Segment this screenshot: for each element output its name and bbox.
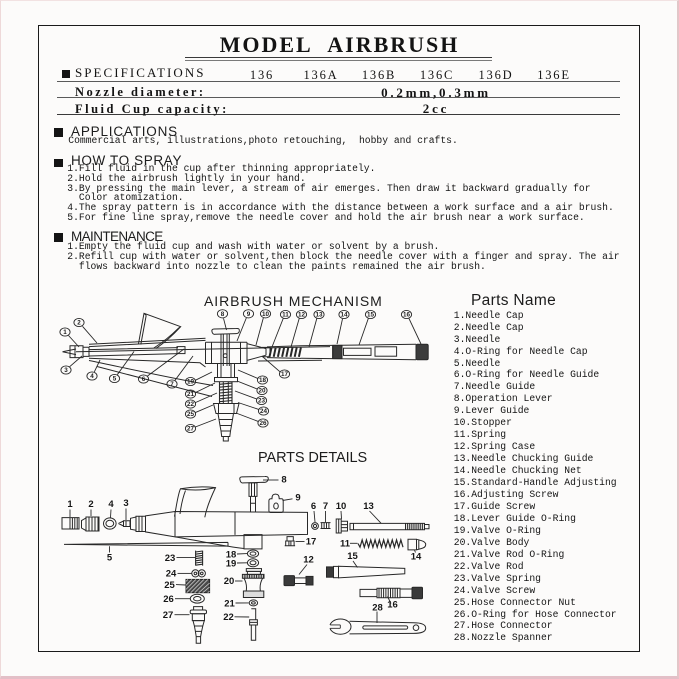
svg-text:2: 2	[77, 320, 81, 327]
svg-text:27: 27	[163, 610, 174, 621]
svg-text:8: 8	[221, 311, 225, 318]
svg-text:16: 16	[403, 312, 411, 319]
svg-text:9: 9	[247, 311, 251, 318]
svg-text:1: 1	[67, 499, 73, 510]
svg-text:22: 22	[223, 612, 234, 623]
svg-text:19: 19	[187, 379, 195, 386]
svg-text:7: 7	[170, 381, 174, 388]
svg-text:8: 8	[281, 475, 286, 486]
svg-text:15: 15	[367, 312, 375, 319]
svg-text:24: 24	[260, 408, 268, 415]
svg-text:27: 27	[187, 426, 195, 433]
svg-text:18: 18	[259, 377, 267, 384]
svg-text:23: 23	[258, 398, 266, 405]
svg-text:2: 2	[88, 499, 93, 510]
svg-text:6: 6	[311, 501, 316, 512]
svg-text:17: 17	[281, 371, 289, 378]
svg-text:5: 5	[113, 376, 117, 383]
svg-text:12: 12	[298, 312, 306, 319]
svg-text:21: 21	[224, 599, 235, 610]
svg-text:3: 3	[64, 367, 68, 374]
svg-text:16: 16	[387, 600, 398, 611]
svg-text:4: 4	[90, 373, 94, 380]
svg-text:22: 22	[187, 401, 195, 408]
svg-text:23: 23	[165, 553, 176, 564]
svg-text:19: 19	[226, 559, 237, 570]
svg-text:15: 15	[347, 551, 358, 562]
svg-text:7: 7	[323, 501, 328, 512]
svg-text:21: 21	[187, 391, 195, 398]
svg-text:20: 20	[258, 388, 266, 395]
svg-text:25: 25	[187, 411, 195, 418]
svg-text:14: 14	[340, 312, 348, 319]
svg-text:28: 28	[372, 603, 383, 614]
svg-text:12: 12	[303, 555, 314, 566]
svg-text:10: 10	[262, 311, 270, 318]
svg-text:17: 17	[306, 537, 317, 548]
svg-text:11: 11	[282, 312, 289, 319]
svg-text:24: 24	[166, 569, 177, 580]
svg-text:20: 20	[224, 576, 235, 587]
svg-text:13: 13	[315, 312, 323, 319]
svg-text:10: 10	[336, 501, 347, 512]
svg-text:4: 4	[108, 499, 114, 510]
svg-text:6: 6	[142, 376, 146, 383]
svg-text:26: 26	[163, 594, 174, 605]
svg-text:5: 5	[107, 553, 113, 564]
svg-text:13: 13	[363, 501, 374, 512]
svg-text:26: 26	[259, 420, 267, 427]
svg-text:1: 1	[63, 329, 67, 336]
svg-text:14: 14	[411, 552, 422, 563]
svg-text:25: 25	[164, 580, 175, 591]
svg-text:3: 3	[123, 498, 128, 509]
svg-text:11: 11	[340, 539, 351, 550]
svg-text:9: 9	[295, 493, 300, 504]
